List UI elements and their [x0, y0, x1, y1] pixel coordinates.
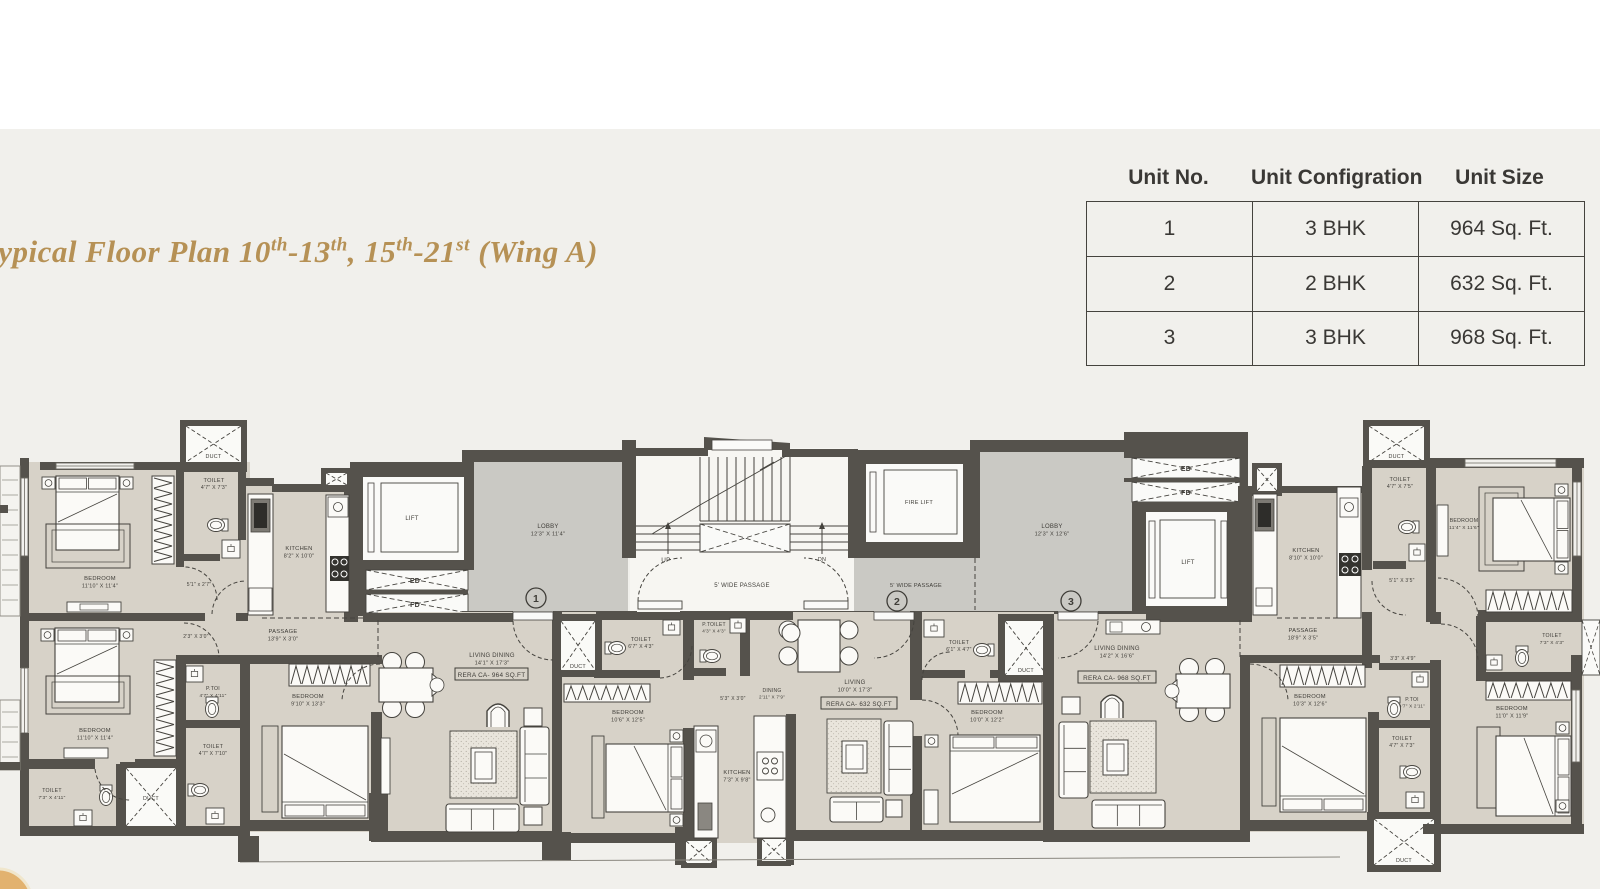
svg-text:4'3" X 4'3": 4'3" X 4'3" [702, 629, 726, 634]
svg-text:11'4" X 11'6": 11'4" X 11'6" [1449, 525, 1479, 531]
svg-text:LOBBY: LOBBY [1041, 524, 1062, 530]
svg-text:KITCHEN: KITCHEN [285, 546, 312, 552]
svg-text:5'1" x 2'7": 5'1" x 2'7" [187, 582, 212, 588]
svg-text:KITCHEN: KITCHEN [723, 770, 750, 776]
svg-text:BEDROOM: BEDROOM [971, 710, 1003, 716]
svg-text:TOILET: TOILET [949, 640, 970, 646]
svg-text:DUCT: DUCT [143, 796, 159, 802]
svg-text:2'11" X 7'9": 2'11" X 7'9" [759, 695, 785, 700]
svg-text:5' WIDE PASSAGE: 5' WIDE PASSAGE [890, 583, 942, 589]
svg-text:4'7" X 7'10": 4'7" X 7'10" [199, 751, 227, 757]
svg-text:LIFT: LIFT [405, 516, 418, 522]
svg-text:TOILET: TOILET [42, 788, 62, 794]
svg-text:9'10" X 13'3": 9'10" X 13'3" [291, 701, 325, 707]
svg-text:4'7" X 2'11": 4'7" X 2'11" [1399, 704, 1425, 709]
svg-text:PASSAGE: PASSAGE [1288, 628, 1317, 634]
svg-text:13'9" X 3'0": 13'9" X 3'0" [268, 636, 298, 642]
svg-text:LOBBY: LOBBY [537, 524, 558, 530]
svg-text:TOILET: TOILET [631, 637, 652, 643]
svg-text:P.TOILET: P.TOILET [702, 622, 726, 628]
svg-text:12'3" X 11'4": 12'3" X 11'4" [531, 532, 565, 538]
svg-text:KITCHEN: KITCHEN [1292, 548, 1319, 554]
svg-text:P.TOI: P.TOI [206, 686, 220, 692]
svg-text:7'3" X 4'3": 7'3" X 4'3" [1540, 640, 1565, 646]
svg-text:18'9" X 3'5": 18'9" X 3'5" [1288, 635, 1318, 641]
svg-text:14'2" X 16'6": 14'2" X 16'6" [1100, 654, 1135, 660]
svg-text:DUCT: DUCT [206, 454, 222, 460]
svg-text:P.TOI: P.TOI [1405, 697, 1419, 703]
svg-text:DUCT: DUCT [1396, 858, 1412, 864]
svg-text:FD: FD [1181, 490, 1191, 497]
svg-text:5' WIDE PASSAGE: 5' WIDE PASSAGE [714, 583, 769, 589]
svg-text:DUCT: DUCT [570, 664, 586, 670]
svg-text:4'7" X 7'5": 4'7" X 7'5" [1387, 484, 1413, 490]
svg-text:BEDROOM: BEDROOM [612, 710, 644, 716]
svg-text:BEDROOM: BEDROOM [1496, 706, 1528, 712]
svg-text:3'3" X 4'9": 3'3" X 4'9" [1390, 656, 1415, 662]
svg-text:TOILET: TOILET [203, 744, 224, 750]
svg-text:4'7" X 7'3": 4'7" X 7'3" [201, 485, 227, 491]
svg-text:2'3" X 3'0": 2'3" X 3'0" [183, 634, 208, 640]
svg-text:PASSAGE: PASSAGE [268, 629, 297, 635]
svg-text:RERA CA- 632 SQ.FT: RERA CA- 632 SQ.FT [826, 701, 892, 708]
svg-text:ED: ED [1181, 466, 1191, 473]
svg-text:10'0" X 12'2": 10'0" X 12'2" [970, 717, 1004, 723]
svg-text:TOILET: TOILET [204, 478, 225, 484]
svg-text:TOILET: TOILET [1390, 477, 1411, 483]
svg-text:10'6" X 12'5": 10'6" X 12'5" [611, 717, 645, 723]
svg-text:LIVING: LIVING [844, 680, 865, 686]
svg-text:4'7" X 7'3": 4'7" X 7'3" [1389, 743, 1414, 749]
svg-text:2: 2 [894, 596, 900, 608]
svg-text:BEDROOM: BEDROOM [292, 694, 324, 700]
svg-text:8'10" X 10'0": 8'10" X 10'0" [1289, 555, 1323, 561]
svg-text:8'2" X 10'0": 8'2" X 10'0" [284, 553, 314, 559]
svg-text:1: 1 [533, 593, 539, 605]
svg-text:LIVING DINING: LIVING DINING [1094, 646, 1140, 652]
svg-text:3: 3 [1068, 596, 1074, 608]
svg-text:DUCT: DUCT [1018, 668, 1034, 674]
svg-text:RERA CA- 964 SQ.FT: RERA CA- 964 SQ.FT [458, 672, 526, 679]
svg-text:12'3" X 12'6": 12'3" X 12'6" [1035, 532, 1070, 538]
svg-text:11'10" X 11'4": 11'10" X 11'4" [82, 583, 118, 589]
svg-text:FD: FD [410, 602, 420, 609]
svg-text:TOILET: TOILET [1542, 633, 1562, 639]
svg-text:BEDROOM: BEDROOM [1294, 694, 1326, 700]
svg-text:11'10" X 11'4": 11'10" X 11'4" [77, 735, 113, 741]
svg-text:DINING: DINING [763, 688, 782, 694]
svg-text:5'3" X 3'0": 5'3" X 3'0" [720, 696, 745, 702]
svg-text:6'1" X 4'7": 6'1" X 4'7" [946, 647, 971, 653]
svg-text:14'1" X 17'3": 14'1" X 17'3" [475, 661, 510, 667]
svg-text:7'3" X 4'11": 7'3" X 4'11" [38, 795, 65, 801]
svg-text:BEDROOM: BEDROOM [1450, 518, 1479, 524]
svg-text:DUCT: DUCT [1389, 454, 1405, 460]
svg-text:LIFT: LIFT [1181, 560, 1194, 566]
svg-text:TOILET: TOILET [1392, 736, 1413, 742]
svg-text:7'3" X 9'8": 7'3" X 9'8" [723, 777, 750, 783]
svg-text:6'7" X 4'3": 6'7" X 4'3" [628, 644, 653, 650]
svg-text:BEDROOM: BEDROOM [79, 728, 111, 734]
svg-text:FIRE LIFT: FIRE LIFT [905, 500, 933, 506]
svg-text:5'1" X 3'5": 5'1" X 3'5" [1389, 578, 1414, 584]
svg-text:LIVING DINING: LIVING DINING [469, 653, 515, 659]
svg-text:11'0" X 11'9": 11'0" X 11'9" [1496, 713, 1529, 719]
svg-text:10'3" X 12'6": 10'3" X 12'6" [1293, 701, 1327, 707]
svg-text:10'0" X 17'3": 10'0" X 17'3" [838, 688, 873, 694]
svg-text:RERA CA- 968 SQ.FT: RERA CA- 968 SQ.FT [1083, 675, 1151, 682]
svg-text:ED: ED [410, 578, 420, 585]
svg-text:BEDROOM: BEDROOM [84, 576, 116, 582]
